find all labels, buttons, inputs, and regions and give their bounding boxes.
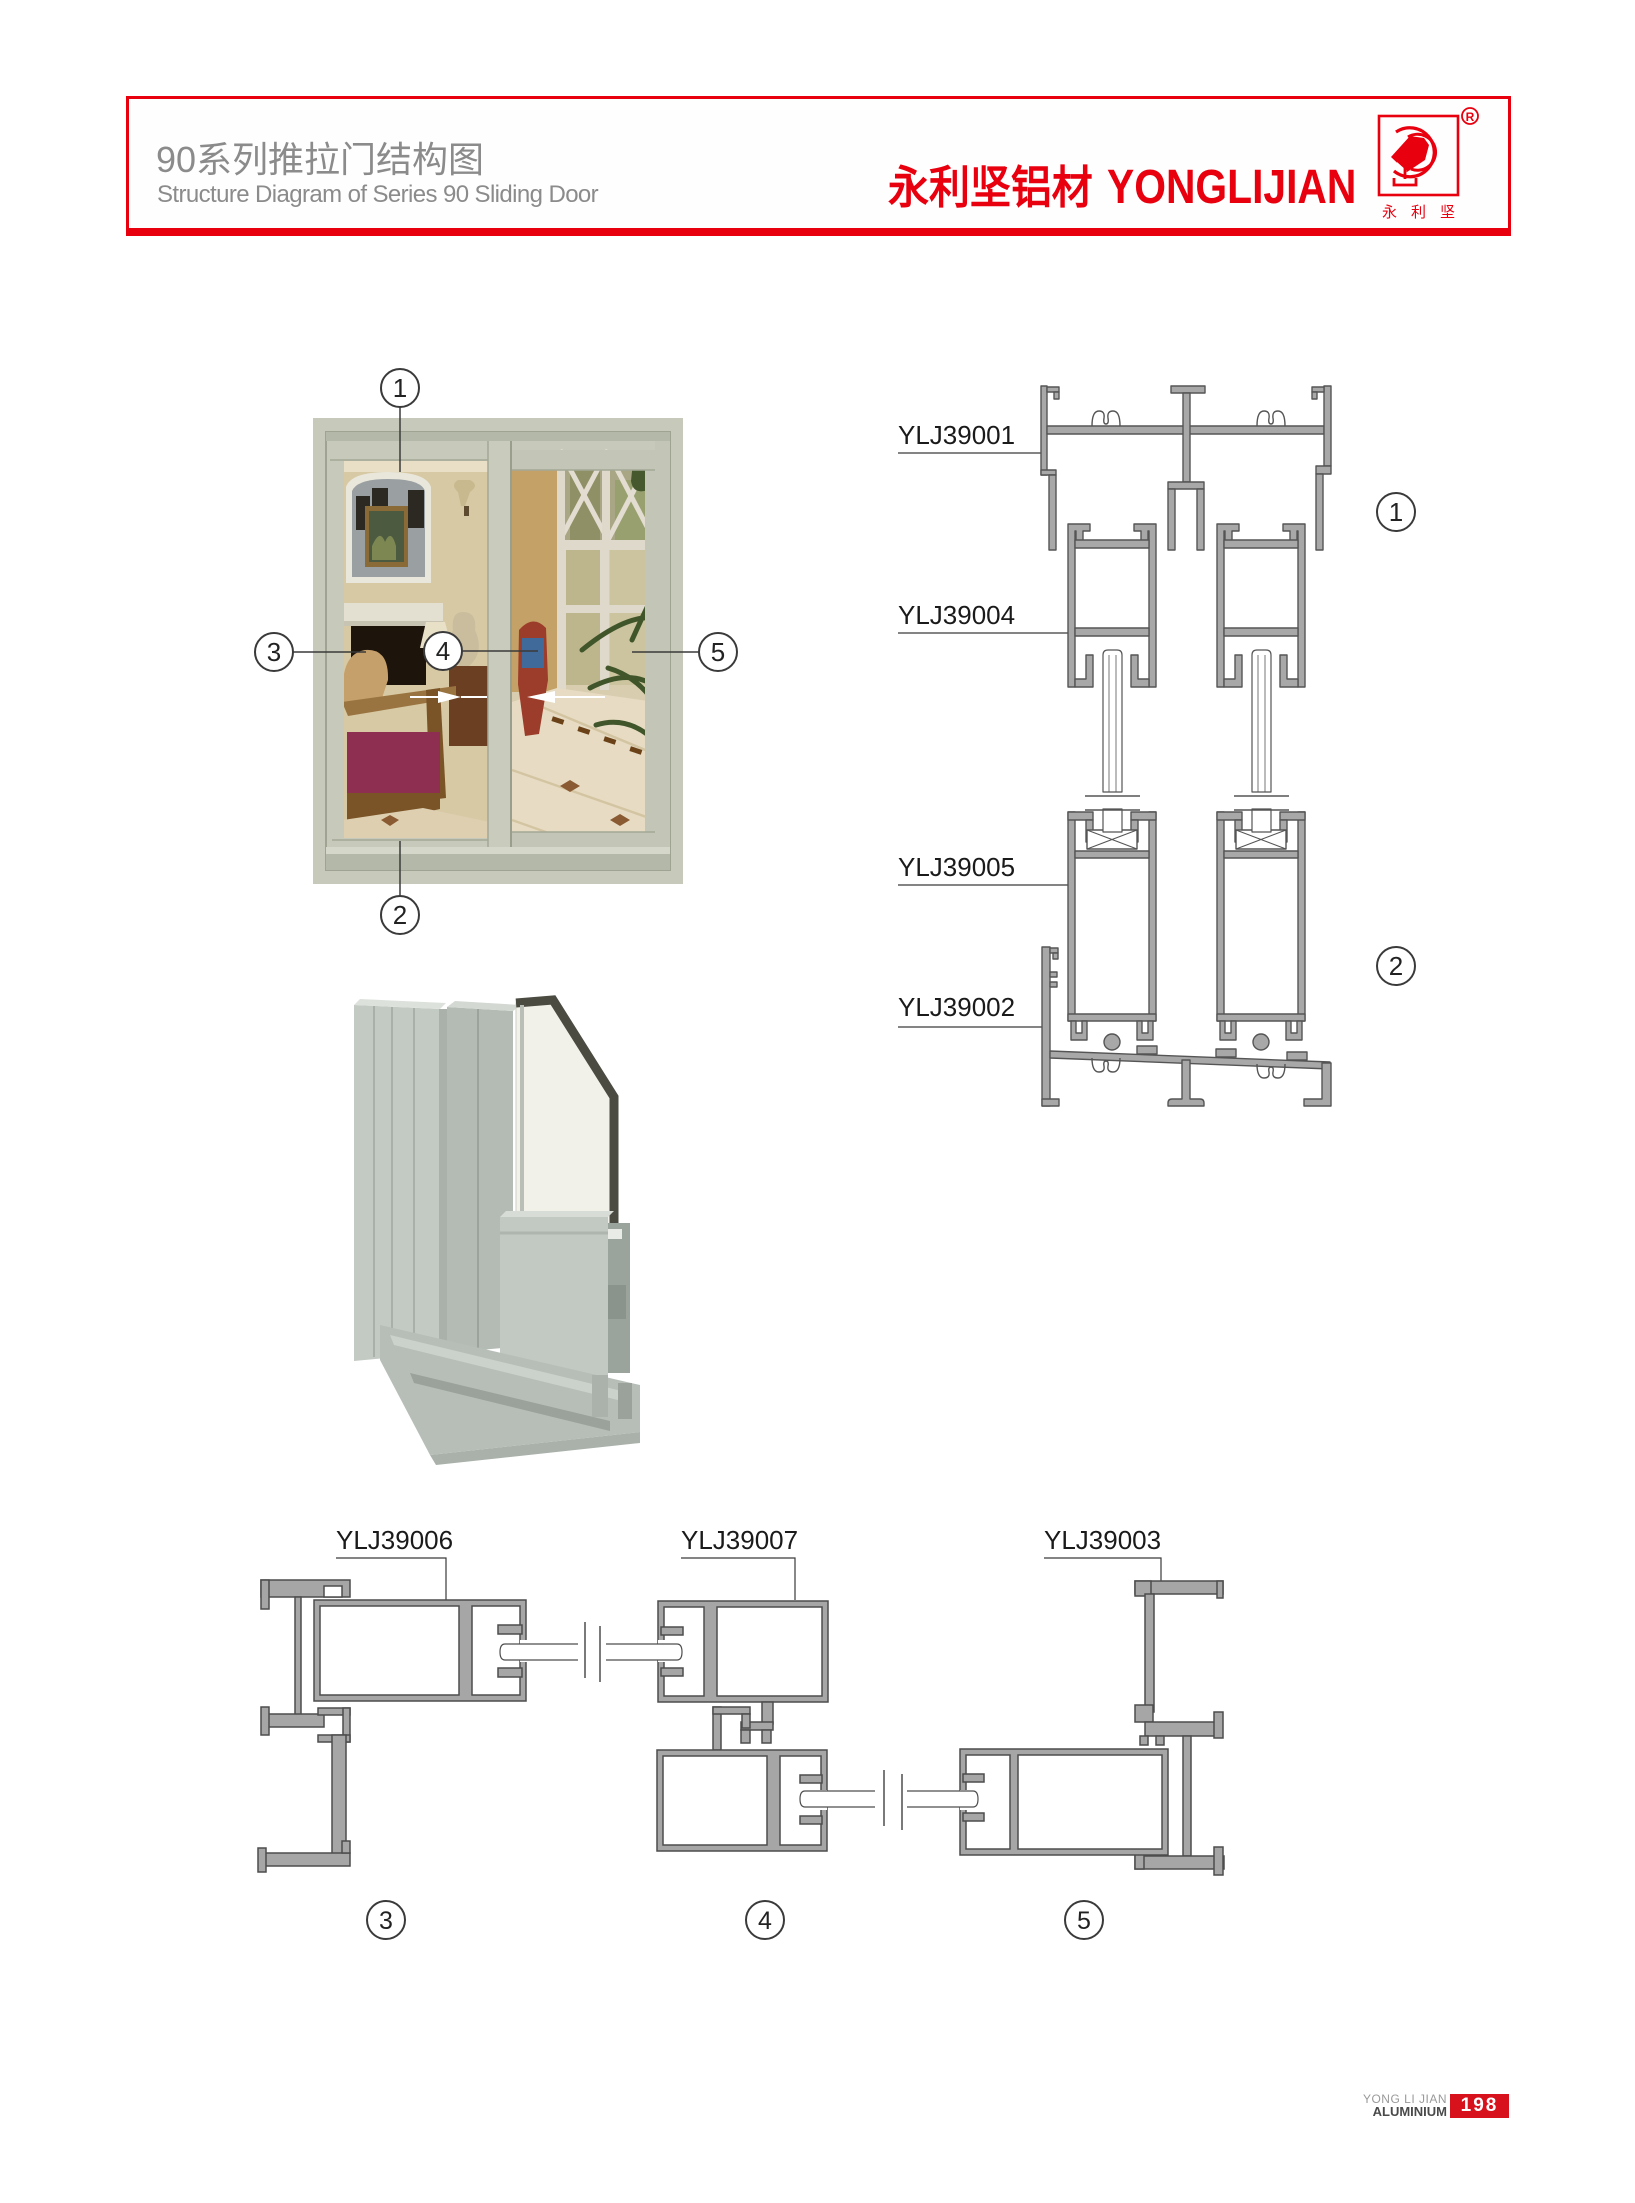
svg-text:3: 3 xyxy=(267,637,281,667)
svg-text:2: 2 xyxy=(1389,951,1403,981)
svg-text:3: 3 xyxy=(379,1907,393,1935)
svg-text:YLJ39005: YLJ39005 xyxy=(898,852,1015,882)
svg-text:YLJ39002: YLJ39002 xyxy=(898,992,1015,1022)
svg-text:永利坚: 永利坚 xyxy=(1382,204,1469,221)
svg-text:5: 5 xyxy=(1077,1907,1091,1935)
svg-text:1: 1 xyxy=(1389,497,1403,527)
svg-text:4: 4 xyxy=(436,636,450,666)
svg-text:5: 5 xyxy=(711,637,725,667)
svg-text:YLJ39003: YLJ39003 xyxy=(1044,1525,1161,1555)
svg-text:YLJ39007: YLJ39007 xyxy=(681,1525,798,1555)
svg-text:YLJ39001: YLJ39001 xyxy=(898,420,1015,450)
svg-text:4: 4 xyxy=(758,1907,772,1935)
svg-text:1: 1 xyxy=(393,373,407,403)
svg-text:YLJ39004: YLJ39004 xyxy=(898,600,1015,630)
svg-text:2: 2 xyxy=(393,900,407,930)
svg-text:YLJ39006: YLJ39006 xyxy=(336,1525,453,1555)
svg-text:R: R xyxy=(1466,110,1475,124)
